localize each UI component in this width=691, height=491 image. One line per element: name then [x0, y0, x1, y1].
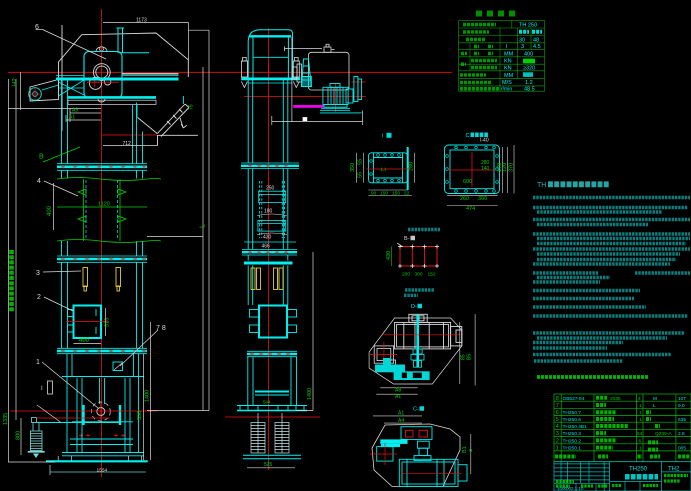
svg-text:48.5: 48.5 [524, 87, 535, 93]
svg-text:1.2: 1.2 [525, 80, 533, 86]
svg-text:430: 430 [263, 235, 272, 241]
svg-text:30: 30 [519, 37, 525, 43]
svg-text:140: 140 [481, 166, 490, 172]
svg-text:152: 152 [428, 272, 436, 278]
svg-text:280: 280 [409, 162, 415, 171]
svg-text:250: 250 [266, 185, 275, 191]
svg-text:D-: D- [411, 304, 417, 310]
svg-text:1: 1 [556, 446, 559, 452]
svg-text:B5: B5 [467, 354, 473, 360]
svg-text:A1: A1 [69, 115, 75, 121]
svg-text:6: 6 [556, 410, 559, 416]
svg-text:400: 400 [47, 205, 53, 216]
svg-text:M/S: M/S [502, 80, 512, 86]
svg-text:L: L [200, 224, 207, 228]
svg-text:64: 64 [637, 431, 643, 437]
svg-text:TH250.1: TH250.1 [563, 446, 582, 452]
svg-text:120: 120 [502, 163, 508, 172]
svg-text:TH250.3: TH250.3 [563, 431, 582, 437]
svg-text:TH250.2: TH250.2 [563, 438, 582, 444]
svg-text:TH 250: TH 250 [519, 23, 537, 29]
svg-text:KN: KN [504, 59, 512, 65]
svg-text:005: 005 [678, 446, 686, 452]
svg-text:1: 1 [639, 410, 642, 416]
svg-text:≥320: ≥320 [523, 66, 535, 72]
svg-text:H2: H2 [13, 78, 19, 86]
svg-text:2: 2 [556, 438, 559, 444]
svg-text:4: 4 [638, 396, 641, 402]
svg-text:TH250.4B1: TH250.4B1 [563, 424, 588, 430]
svg-text:2.6: 2.6 [678, 431, 685, 437]
svg-text:150: 150 [392, 190, 400, 196]
svg-text:10T: 10T [678, 396, 686, 402]
svg-text:3: 3 [521, 44, 524, 50]
svg-text:544: 544 [263, 400, 271, 405]
svg-text:600: 600 [463, 179, 472, 185]
svg-text:55: 55 [358, 159, 364, 165]
svg-text:1335: 1335 [3, 413, 9, 425]
svg-text:TH250.7: TH250.7 [563, 410, 582, 416]
svg-text:7: 7 [556, 403, 559, 409]
svg-text:C-: C- [413, 407, 419, 413]
svg-text:3: 3 [36, 270, 40, 277]
svg-text:I-40: I-40 [480, 138, 489, 144]
svg-text:L: L [653, 403, 656, 409]
svg-text:4: 4 [556, 424, 559, 430]
svg-text:A1: A1 [395, 394, 401, 400]
svg-text:C: C [466, 133, 470, 139]
svg-text:B: B [39, 154, 44, 161]
svg-text:TH250.6: TH250.6 [563, 417, 582, 423]
svg-text:712: 712 [123, 141, 132, 147]
svg-text:8: 8 [556, 396, 559, 402]
svg-text:KN: KN [504, 66, 512, 72]
svg-text:4.5: 4.5 [533, 44, 541, 50]
svg-text:466: 466 [262, 244, 271, 250]
svg-text:430: 430 [386, 251, 392, 260]
svg-text:48: 48 [533, 37, 539, 43]
svg-text:3: 3 [556, 431, 559, 437]
svg-text:370: 370 [509, 163, 515, 172]
svg-text:A4: A4 [398, 418, 404, 424]
svg-text:TH250: TH250 [629, 467, 648, 473]
svg-text:1000XG 1:10: 1000XG 1:10 [557, 486, 584, 491]
svg-text:I-I: I-I [381, 168, 386, 174]
svg-text:6: 6 [639, 438, 642, 444]
svg-text:Q235-A: Q235-A [655, 431, 672, 437]
svg-text:TH2: TH2 [668, 467, 680, 473]
svg-text:1173: 1173 [136, 18, 147, 24]
svg-text:GB527-84: GB527-84 [563, 396, 585, 402]
svg-text:150: 150 [380, 190, 388, 196]
svg-text:55: 55 [358, 172, 364, 178]
svg-text:400: 400 [524, 51, 533, 57]
svg-text:9.0: 9.0 [678, 403, 685, 409]
svg-text:1: 1 [639, 403, 642, 409]
svg-text:l: l [506, 44, 507, 50]
svg-text:350: 350 [350, 163, 356, 172]
svg-text:A9: A9 [72, 108, 78, 114]
svg-text:1: 1 [639, 446, 642, 452]
svg-text:7 8: 7 8 [156, 325, 166, 332]
svg-text:M: M [653, 396, 657, 402]
svg-text:400: 400 [79, 338, 90, 344]
svg-text:1: 1 [36, 359, 40, 366]
svg-text:300: 300 [478, 196, 487, 202]
svg-text:6: 6 [35, 24, 39, 31]
svg-text:75: 75 [189, 104, 195, 110]
svg-text:MM: MM [504, 51, 514, 57]
svg-text:A8: A8 [395, 388, 401, 394]
svg-text:2035: 2035 [610, 396, 621, 402]
svg-text:200: 200 [402, 272, 410, 278]
svg-text:180: 180 [264, 208, 273, 214]
svg-text:1400: 1400 [145, 390, 151, 402]
svg-text:635: 635 [678, 417, 686, 423]
svg-text:800: 800 [16, 431, 22, 440]
svg-text:B-: B- [404, 236, 410, 242]
svg-text:1120: 1120 [98, 202, 110, 208]
svg-text:515: 515 [105, 318, 111, 327]
svg-text:474: 474 [466, 206, 475, 212]
svg-text:22: 22 [404, 190, 410, 196]
svg-text:1400: 1400 [307, 388, 313, 400]
svg-text:300: 300 [415, 272, 423, 278]
svg-text:r/min: r/min [501, 87, 512, 93]
svg-text:90: 90 [371, 190, 377, 196]
svg-text:A1: A1 [398, 410, 404, 416]
svg-text:1554: 1554 [97, 467, 108, 473]
svg-text:2: 2 [37, 294, 41, 301]
svg-text:4: 4 [37, 178, 41, 185]
svg-text:550: 550 [137, 411, 143, 420]
svg-text:5: 5 [556, 417, 559, 423]
svg-text:1: 1 [639, 417, 642, 423]
svg-text:TH: TH [537, 182, 546, 189]
svg-text:260: 260 [460, 196, 469, 202]
svg-text:525: 525 [264, 462, 273, 468]
svg-text:MM: MM [504, 73, 514, 79]
